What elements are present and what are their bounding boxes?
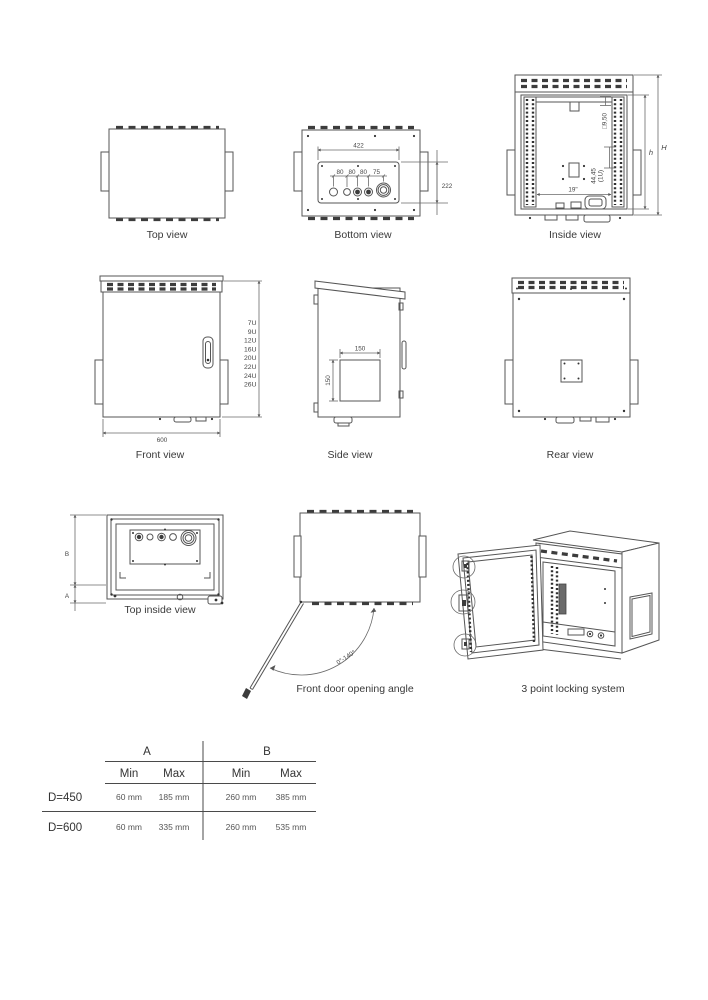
wall-bracket-left <box>294 536 301 577</box>
dim-plate-width: 422 <box>353 143 364 150</box>
wall-bracket-left <box>95 360 103 404</box>
roof-edge <box>100 276 223 281</box>
cabinet-technical-drawing: Top view 80 80 80 <box>0 0 708 1000</box>
door-panel <box>103 292 220 417</box>
drawing-sheet: Top view 80 80 80 <box>0 0 708 1000</box>
wall-bracket-left <box>505 360 513 404</box>
wall-bracket-left <box>507 150 515 195</box>
rack-unit-option-12u: 12U <box>244 338 257 345</box>
wall-bracket-right <box>225 152 233 191</box>
rack-unit-option-7u: 7U <box>248 320 257 327</box>
dim-hole-pitch-1: 80 <box>336 169 344 176</box>
dim-b: B <box>65 551 69 558</box>
wall-bracket-right <box>630 360 638 404</box>
front-view-drawing: 600 7U 9U 12U 16U 20U 22U 24U 26U <box>95 276 262 444</box>
locking-system-drawing <box>451 531 659 659</box>
caption-locking-system: 3 point locking system <box>521 683 625 695</box>
dim-rail-hole: □9,50 <box>602 112 609 129</box>
caption-top-view: Top view <box>147 229 188 241</box>
wall-bracket-right <box>420 152 428 191</box>
dim-hole-pitch-4: 75 <box>373 169 381 176</box>
dim-cutout-width: 150 <box>355 346 366 353</box>
caption-door-angle: Front door opening angle <box>296 683 413 695</box>
dim-total-height: H <box>661 143 667 152</box>
caption-inside-view: Inside view <box>549 229 601 241</box>
dim-hole-pitch-2: 80 <box>348 169 356 176</box>
dimension-table: A B Min Max Min Max D=450 60 mm 185 mm 2… <box>42 741 316 840</box>
dim-a: A <box>65 593 70 600</box>
cell-d450-b-min: 260 mm <box>226 792 257 802</box>
caption-bottom-view: Bottom view <box>334 229 392 241</box>
rack-unit-option-20u: 20U <box>244 355 257 362</box>
cell-d450-a-max: 185 mm <box>159 792 190 802</box>
wall-bracket-right <box>220 360 228 404</box>
rack-unit-option-16u: 16U <box>244 346 257 353</box>
rear-view-drawing <box>505 278 638 423</box>
side-view-drawing: 150 150 <box>314 281 406 426</box>
top-inside-view-drawing: B A <box>65 515 224 611</box>
door-angle-drawing: 0°-140° <box>242 512 426 700</box>
rack-unit-option-24u: 24U <box>244 373 257 380</box>
cable-gland <box>585 196 606 209</box>
door-handle <box>242 688 251 699</box>
cell-d600-b-max: 535 mm <box>276 822 307 832</box>
bottom-view-drawing: 80 80 80 75 422 222 <box>294 128 453 219</box>
table-subheader-a-max: Max <box>163 768 185 780</box>
inside-view-drawing: □9,50 44,45 (1U) 19" h H <box>507 75 667 222</box>
opening-arc <box>270 608 374 675</box>
top-view-drawing <box>101 128 233 220</box>
rack-rail <box>559 584 566 614</box>
vent-strip <box>512 278 630 293</box>
open-door <box>250 602 301 688</box>
wall-bracket-right <box>633 150 641 195</box>
dim-inner-height: h <box>649 148 653 157</box>
caption-front-view: Front view <box>136 449 185 461</box>
dim-hole-pitch-3: 80 <box>360 169 368 176</box>
cell-d600-b-min: 260 mm <box>226 822 257 832</box>
dim-plate-height: 222 <box>442 183 453 190</box>
wall-bracket-right <box>419 536 426 577</box>
cell-d600-a-min: 60 mm <box>116 822 142 832</box>
caption-side-view: Side view <box>328 449 373 461</box>
row-label-d600: D=600 <box>48 822 82 834</box>
dim-opening-range: 0°-140° <box>335 648 357 666</box>
table-row: D=450 60 mm 185 mm 260 mm 385 mm <box>48 792 306 804</box>
handle-profile <box>402 341 406 369</box>
dim-rack-width: 19" <box>568 187 577 194</box>
caption-rear-view: Rear view <box>547 449 594 461</box>
rack-unit-option-22u: 22U <box>244 364 257 371</box>
table-subheader-a-min: Min <box>120 768 139 780</box>
cell-d600-a-max: 335 mm <box>159 822 190 832</box>
table-subheader-b-max: Max <box>280 768 302 780</box>
cell-d450-b-max: 385 mm <box>276 792 307 802</box>
rack-unit-option-9u: 9U <box>248 329 257 336</box>
table-header-a: A <box>143 746 151 758</box>
dim-cabinet-width: 600 <box>157 437 168 444</box>
dim-cutout-height: 150 <box>325 375 332 386</box>
rack-unit-option-26u: 26U <box>244 382 257 389</box>
row-label-d450: D=450 <box>48 792 82 804</box>
dim-1u-unit: (1U) <box>598 170 605 182</box>
caption-top-inside-view: Top inside view <box>124 604 196 616</box>
wall-bracket-left <box>294 152 302 191</box>
cell-d450-a-min: 60 mm <box>116 792 142 802</box>
dim-1u-value: 44,45 <box>591 168 598 184</box>
table-row: D=600 60 mm 335 mm 260 mm 535 mm <box>48 822 306 834</box>
table-subheader-b-min: Min <box>232 768 251 780</box>
table-header-b: B <box>263 746 271 758</box>
wall-bracket-left <box>101 152 109 191</box>
